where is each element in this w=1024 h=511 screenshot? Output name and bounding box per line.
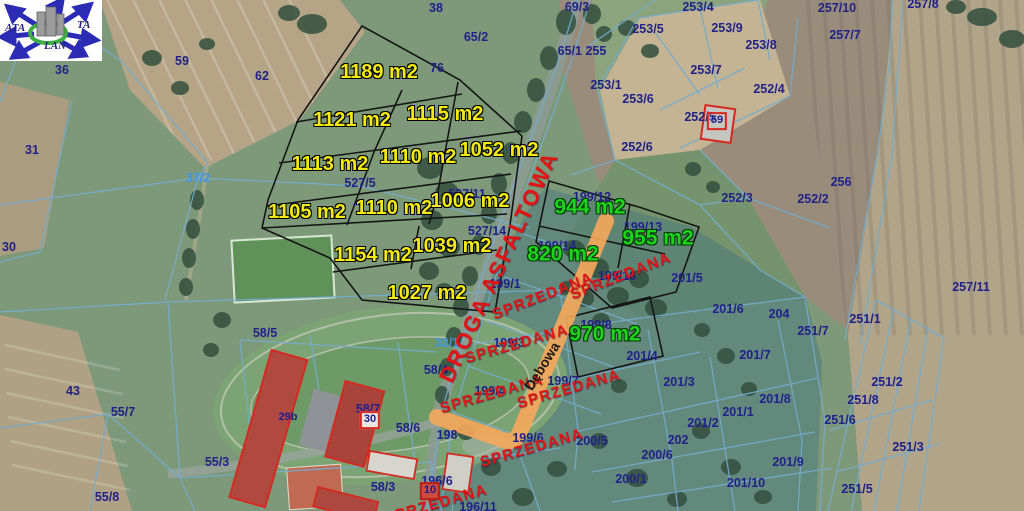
logo-text-right: TA xyxy=(77,20,90,31)
parcel-number: 200/6 xyxy=(641,449,672,462)
street-name-label: Dębowa xyxy=(522,340,562,393)
map-labels-layer: 383659627631304365/265/1 25569/3253/4253… xyxy=(0,0,1024,511)
area-label-yellow: 1113 m2 xyxy=(292,154,369,174)
parcel-number: 201/9 xyxy=(772,456,803,469)
area-label-yellow: 1027 m2 xyxy=(388,283,467,303)
parcel-number: 202 xyxy=(668,434,689,447)
building-badge: 59 xyxy=(707,112,727,130)
area-label-yellow: 1189 m2 xyxy=(340,62,418,82)
parcel-number: 199/3 xyxy=(493,337,524,350)
parcel-number: 198 xyxy=(437,429,458,442)
parcel-number: 65/2 xyxy=(464,31,488,44)
parcel-number: 58/6 xyxy=(396,422,420,435)
parcel-number: 253/8 xyxy=(745,39,776,52)
parcel-number: 58/3 xyxy=(371,481,395,494)
parcel-number: 199/8 xyxy=(580,319,611,332)
sold-label: SPRZEDANA xyxy=(568,250,673,302)
parcel-number: 251/5 xyxy=(841,483,872,496)
road-name-label: DROGA ASFALTOWA xyxy=(436,148,563,386)
aerial-map: 383659627631304365/265/1 25569/3253/4253… xyxy=(0,0,1024,511)
parcel-number: 257/7 xyxy=(829,29,860,42)
parcel-number: 251/6 xyxy=(824,414,855,427)
parcel-number: 199/16 xyxy=(598,270,636,283)
parcel-number: 31 xyxy=(25,144,39,157)
parcel-number: 36 xyxy=(55,64,69,77)
parcel-number: 30 xyxy=(2,241,16,254)
parcel-number: 251/1 xyxy=(849,313,880,326)
sold-label: SPRZEDANA xyxy=(490,270,595,322)
logo-text-bottom: LAN xyxy=(44,41,66,52)
parcel-number: 201/10 xyxy=(727,477,765,490)
parcel-number: 253/5 xyxy=(632,23,663,36)
parcel-number: 251/7 xyxy=(797,325,828,338)
parcel-number: 199/12 xyxy=(573,191,611,204)
parcel-number: 76 xyxy=(430,62,444,75)
parcel-number: 201/6 xyxy=(712,303,743,316)
parcel-number: 253/7 xyxy=(690,64,721,77)
parcel-number: 201/2 xyxy=(687,417,718,430)
area-label-yellow: 1110 m2 xyxy=(380,147,457,167)
area-label-yellow: 1115 m2 xyxy=(407,104,484,124)
parcel-number: 252/2 xyxy=(797,193,828,206)
area-label-green: 970 m2 xyxy=(569,324,640,345)
parcel-number: 58/4 xyxy=(424,364,448,377)
parcel-number: 55/3 xyxy=(205,456,229,469)
parcel-number: 200/1 xyxy=(615,473,646,486)
parcel-number: 201/4 xyxy=(626,350,657,363)
parcel-number: 55/7 xyxy=(111,406,135,419)
building-badge: 10 xyxy=(420,482,440,500)
sold-label: SPRZEDANA xyxy=(479,426,586,470)
parcel-number: 204 xyxy=(769,308,790,321)
parcel-number: 43 xyxy=(66,385,80,398)
parcel-number: 201/7 xyxy=(739,349,770,362)
parcel-number: 527/14 xyxy=(468,225,506,238)
sold-label: SPRZEDANA xyxy=(439,372,546,416)
parcel-number: 527/11 xyxy=(448,188,486,201)
parcel-number: 252/6 xyxy=(621,141,652,154)
parcel-number: 257/11 xyxy=(952,281,990,294)
parcel-number: 199/4 xyxy=(474,385,505,398)
parcel-number: 253/4 xyxy=(682,1,713,14)
area-label-yellow: 1105 m2 xyxy=(268,202,346,222)
building-badge: 30 xyxy=(360,411,380,429)
parcel-number: 196/11 xyxy=(459,501,497,511)
parcel-number: 37/2 xyxy=(186,172,210,185)
parcel-number: 252/4 xyxy=(753,83,784,96)
area-label-green: 820 m2 xyxy=(527,244,598,265)
parcel-number: 62 xyxy=(255,70,269,83)
area-label-yellow: 1121 m2 xyxy=(313,110,391,130)
parcel-number: 199/7 xyxy=(547,375,578,388)
parcel-number: 253/1 xyxy=(590,79,621,92)
parcel-number: 58/5 xyxy=(253,327,277,340)
parcel-number: 251/3 xyxy=(892,441,923,454)
parcel-number: 69/3 xyxy=(565,1,589,14)
parcel-number: 251/8 xyxy=(847,394,878,407)
parcel-number: 199/6 xyxy=(512,432,543,445)
parcel-number: 55/8 xyxy=(95,491,119,504)
area-label-yellow: 1110 m2 xyxy=(356,198,433,218)
area-label-yellow: 1039 m2 xyxy=(413,236,492,256)
area-label-yellow: 1006 m2 xyxy=(431,191,510,211)
sold-label: SPRZEDANA xyxy=(464,322,571,366)
parcel-number: 251/2 xyxy=(871,376,902,389)
parcel-number: 38 xyxy=(429,2,443,15)
parcel-number: 201/8 xyxy=(759,393,790,406)
sold-label: SPRZEDANA xyxy=(516,367,623,411)
parcel-number: 201/1 xyxy=(722,406,753,419)
building-badge: 29b xyxy=(277,411,300,425)
parcel-number: 201/5 xyxy=(671,272,702,285)
area-label-yellow: 1052 m2 xyxy=(460,140,539,160)
parcel-number: 256 xyxy=(831,176,852,189)
parcel-number: 201/3 xyxy=(663,376,694,389)
parcel-number: 200/5 xyxy=(576,435,607,448)
parcel-number: 59 xyxy=(175,55,189,68)
parcel-number: 253/6 xyxy=(622,93,653,106)
parcel-number: 199/14 xyxy=(538,240,576,253)
area-label-green: 944 m2 xyxy=(554,197,625,218)
area-label-green: 955 m2 xyxy=(622,228,693,249)
parcel-number: 257/10 xyxy=(818,2,856,15)
agency-logo: ATA TA LAN xyxy=(0,0,102,61)
parcel-number: 32/1 xyxy=(435,337,459,350)
parcel-number: 253/9 xyxy=(711,22,742,35)
area-label-yellow: 1154 m2 xyxy=(334,245,412,265)
parcel-number: 65/1 255 xyxy=(558,45,607,58)
parcel-number: 252/3 xyxy=(721,192,752,205)
parcel-number: 257/8 xyxy=(907,0,938,10)
parcel-number: 199/13 xyxy=(624,221,662,234)
parcel-number: 527/5 xyxy=(344,177,375,190)
parcel-number: 199/1 xyxy=(489,278,520,291)
logo-text-left: ATA xyxy=(5,23,25,34)
